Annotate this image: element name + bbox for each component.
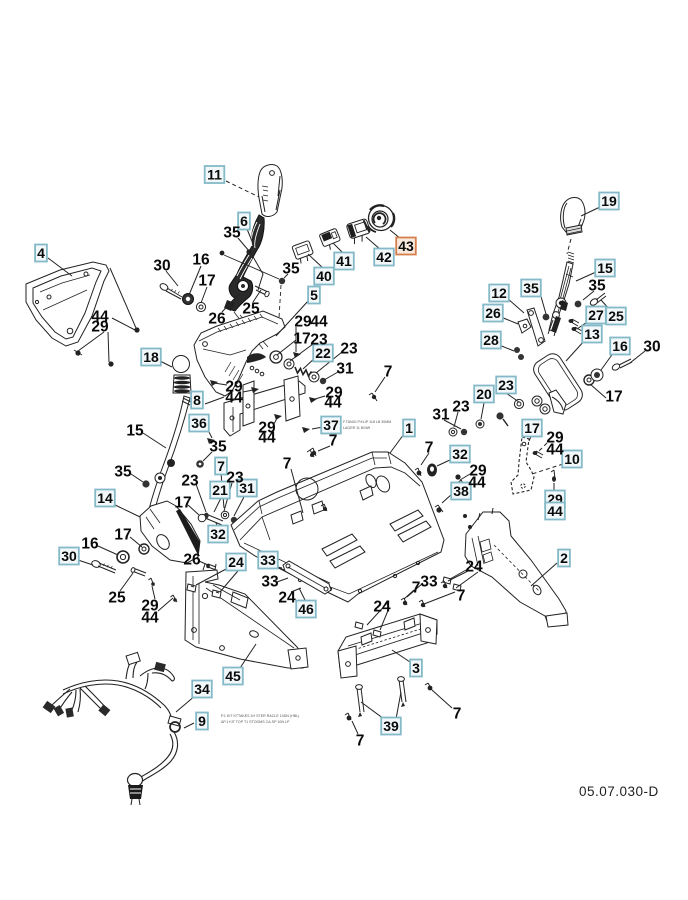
svg-text:10: 10 — [564, 451, 580, 467]
svg-text:44: 44 — [310, 314, 328, 331]
svg-text:44: 44 — [546, 442, 564, 459]
svg-text:40: 40 — [316, 268, 332, 284]
svg-text:36: 36 — [191, 415, 207, 431]
svg-text:35: 35 — [114, 464, 132, 481]
svg-text:16: 16 — [192, 252, 210, 269]
svg-text:45: 45 — [225, 668, 241, 684]
svg-text:12: 12 — [491, 285, 507, 301]
svg-text:6: 6 — [240, 213, 248, 229]
svg-text:35: 35 — [588, 278, 606, 295]
svg-text:44: 44 — [258, 430, 276, 447]
svg-text:30: 30 — [61, 548, 77, 564]
svg-text:43: 43 — [398, 238, 414, 254]
svg-text:4: 4 — [37, 245, 45, 261]
svg-text:14: 14 — [97, 490, 113, 506]
svg-text:23: 23 — [226, 470, 244, 487]
svg-text:35: 35 — [523, 280, 539, 296]
svg-text:26: 26 — [183, 552, 201, 569]
svg-text:17: 17 — [293, 331, 310, 348]
svg-text:31: 31 — [432, 407, 450, 424]
svg-text:23: 23 — [181, 473, 199, 490]
svg-text:7: 7 — [453, 706, 462, 723]
svg-text:7: 7 — [425, 440, 434, 457]
svg-text:7: 7 — [356, 733, 365, 750]
svg-text:17: 17 — [605, 389, 622, 406]
svg-text:37: 37 — [323, 417, 339, 433]
svg-text:15: 15 — [597, 260, 613, 276]
svg-text:9: 9 — [198, 713, 206, 729]
svg-text:35: 35 — [209, 439, 227, 456]
svg-text:29: 29 — [91, 319, 109, 336]
svg-text:44: 44 — [547, 503, 563, 519]
svg-text:35: 35 — [223, 225, 241, 242]
svg-text:34: 34 — [194, 681, 210, 697]
svg-text:20: 20 — [476, 386, 492, 402]
svg-text:25: 25 — [108, 590, 126, 607]
svg-text:24: 24 — [228, 554, 244, 570]
svg-text:38: 38 — [453, 483, 469, 499]
svg-text:23: 23 — [310, 332, 328, 349]
svg-text:16: 16 — [81, 536, 99, 553]
svg-text:7: 7 — [217, 458, 225, 474]
svg-text:44: 44 — [225, 390, 243, 407]
svg-text:24: 24 — [465, 559, 483, 576]
svg-text:26: 26 — [485, 305, 501, 321]
svg-text:17: 17 — [114, 527, 131, 544]
svg-text:25: 25 — [608, 308, 624, 324]
svg-text:33: 33 — [420, 574, 438, 591]
svg-text:41: 41 — [336, 253, 352, 269]
svg-text:42: 42 — [376, 249, 392, 265]
svg-text:16: 16 — [612, 338, 628, 354]
svg-text:7: 7 — [283, 456, 292, 473]
svg-text:31: 31 — [336, 361, 354, 378]
svg-text:18: 18 — [143, 349, 159, 365]
svg-text:15: 15 — [126, 423, 144, 440]
svg-text:11: 11 — [207, 167, 222, 183]
svg-text:25: 25 — [242, 301, 260, 318]
svg-text:35: 35 — [282, 261, 300, 278]
svg-text:LAGER 11 BStW: LAGER 11 BStW — [343, 426, 371, 430]
svg-text:19: 19 — [601, 193, 617, 209]
svg-text:13: 13 — [584, 326, 600, 342]
svg-text:33: 33 — [260, 552, 276, 568]
svg-text:39: 39 — [383, 718, 399, 734]
svg-text:30: 30 — [643, 339, 660, 356]
svg-text:17: 17 — [198, 273, 215, 290]
svg-text:P.1 KIT KTTAKES 1H STER RACLE: P.1 KIT KTTAKES 1H STER RACLE 10DN (HBL) — [221, 714, 299, 718]
svg-text:29: 29 — [294, 314, 312, 331]
svg-text:1: 1 — [405, 420, 413, 436]
svg-text:33: 33 — [261, 574, 279, 591]
svg-text:24: 24 — [278, 590, 296, 607]
svg-text:27: 27 — [588, 307, 604, 323]
svg-text:44: 44 — [468, 475, 486, 492]
svg-text:7: 7 — [412, 580, 421, 597]
svg-text:17: 17 — [524, 420, 540, 436]
svg-text:2: 2 — [560, 550, 568, 566]
svg-text:44: 44 — [324, 395, 342, 412]
svg-text:7: 7 — [329, 433, 338, 450]
svg-text:05.07.030-D: 05.07.030-D — [579, 784, 659, 799]
svg-text:32: 32 — [210, 526, 226, 542]
svg-text:32: 32 — [452, 446, 468, 462]
svg-text:44: 44 — [141, 610, 159, 627]
svg-text:23: 23 — [452, 399, 470, 416]
svg-text:26: 26 — [208, 311, 226, 328]
svg-text:5: 5 — [310, 287, 318, 303]
svg-text:8: 8 — [193, 392, 201, 408]
svg-text:7: 7 — [457, 588, 466, 605]
svg-text:23: 23 — [340, 341, 358, 358]
svg-text:23: 23 — [498, 377, 514, 393]
svg-text:24: 24 — [373, 599, 391, 616]
svg-text:17: 17 — [174, 495, 191, 512]
svg-text:3: 3 — [412, 660, 420, 676]
svg-text:30: 30 — [153, 258, 170, 275]
svg-text:28: 28 — [483, 332, 499, 348]
svg-text:46: 46 — [298, 601, 314, 617]
svg-text:F.TANGI P.KLIP 118 LB 30MM: F.TANGI P.KLIP 118 LB 30MM — [343, 420, 391, 424]
svg-text:7: 7 — [384, 364, 393, 381]
svg-text:AP.1 KIT TOP T1 STOOMS CA.SP 1: AP.1 KIT TOP T1 STOOMS CA.SP 10N LP — [221, 720, 290, 724]
